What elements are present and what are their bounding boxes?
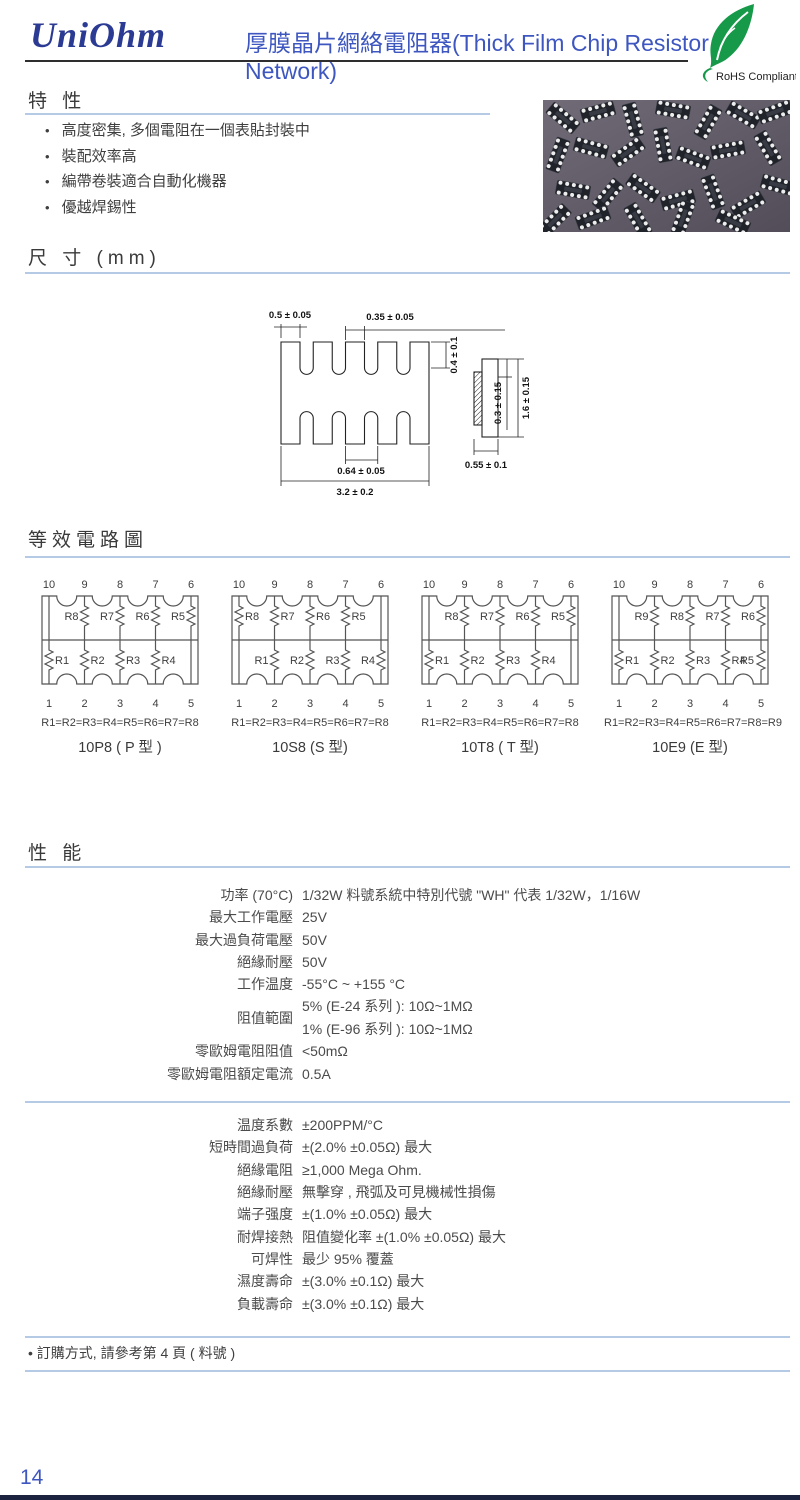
circuit-block-10p8: 10 9 8 7 6 1 2 3 4 5 R8 R7 R6 R5 R1 R2 R… — [34, 576, 206, 757]
dimensions-heading: 尺 寸 (mm) — [28, 243, 161, 270]
pin-number: 3 — [497, 698, 503, 710]
spec-label: 絕緣電阻 — [25, 1160, 293, 1180]
spec-label: 阻值範圍 — [25, 1008, 293, 1028]
dim-pad-width: 0.35 ± 0.05 — [366, 312, 414, 323]
resistor-label: R5 — [171, 611, 185, 623]
spec-row: 最大工作電壓25V — [25, 906, 785, 928]
resistor-label: R7 — [705, 611, 719, 623]
resistor-label: R4 — [361, 655, 375, 667]
spec-row: 絕緣耐壓無擊穿 , 飛弧及可見機械性損傷 — [25, 1181, 785, 1203]
pin-number: 4 — [532, 698, 538, 710]
resistor-label: R6 — [135, 611, 149, 623]
pin-number: 3 — [117, 698, 123, 710]
spec-value: 阻值變化率 ±(1.0% ±0.05Ω) 最大 — [302, 1227, 506, 1247]
pin-number: 1 — [236, 698, 242, 710]
spec-label: 功率 (70°C) — [25, 885, 293, 905]
circuit-block-10s8: 10 9 8 7 6 1 2 3 4 5 R8 R7 R6 R5 R1 R2 R… — [224, 576, 396, 757]
circuit-formula: R1=R2=R3=R4=R5=R6=R7=R8 — [34, 717, 206, 729]
spec-label: 零歐姆電阻額定電流 — [25, 1064, 293, 1084]
resistor-label: R3 — [696, 655, 710, 667]
pin-number: 9 — [461, 579, 467, 591]
features-heading: 特 性 — [28, 86, 86, 113]
resistor-label: R2 — [661, 655, 675, 667]
spec-value: 50V — [302, 954, 327, 970]
datasheet-page: UniOhm 厚膜晶片網絡電阻器(Thick Film Chip Resisto… — [0, 0, 800, 1500]
spec-value: 5% (E-24 系列 ): 10Ω~1MΩ 1% (E-96 系列 ): 10… — [302, 995, 473, 1040]
spec-table-electrical: 功率 (70°C)1/32W 料號系統中特別代號 "WH" 代表 1/32W，1… — [25, 884, 785, 1085]
resistor-label: R9 — [634, 611, 648, 623]
circuit-block-10e9: 10 9 8 7 6 1 2 3 4 5 R9 R8 R7 R6 R1 R2 R… — [604, 576, 776, 757]
rohs-label: RoHS Compliant — [716, 71, 796, 83]
spec-value: -55°C ~ +155 °C — [302, 976, 405, 992]
pin-number: 6 — [758, 579, 764, 591]
dim-width: 1.6 ± 0.15 — [521, 376, 532, 419]
pin-number: 4 — [342, 698, 348, 710]
header-divider — [25, 60, 688, 62]
circuit-caption: 10T8 ( T 型) — [414, 736, 586, 757]
pin-number: 6 — [188, 579, 194, 591]
spec-table-environmental: 温度系數±200PPM/°C 短時間過負荷±(2.0% ±0.05Ω) 最大 絕… — [25, 1114, 785, 1315]
spec-row: 最大過負荷電壓50V — [25, 929, 785, 951]
spec-row: 端子强度±(1.0% ±0.05Ω) 最大 — [25, 1203, 785, 1225]
pin-number: 1 — [46, 698, 52, 710]
dimensions-underline — [25, 272, 790, 274]
pin-number: 2 — [271, 698, 277, 710]
dim-length: 3.2 ± 0.2 — [337, 487, 374, 498]
spec-row: 耐焊接熱阻值變化率 ±(1.0% ±0.05Ω) 最大 — [25, 1225, 785, 1247]
spec-value: ±200PPM/°C — [302, 1117, 383, 1133]
spec-value: ±(1.0% ±0.05Ω) 最大 — [302, 1204, 432, 1224]
spec-label: 絕緣耐壓 — [25, 952, 293, 972]
feature-item: 高度密集, 多個電阻在一個表貼封裝中 — [45, 118, 310, 144]
spec-row: 絕緣電阻≥1,000 Mega Ohm. — [25, 1159, 785, 1181]
resistor-label: R8 — [670, 611, 684, 623]
spec-label: 短時間過負荷 — [25, 1137, 293, 1157]
dim-pad-end: 0.5 ± 0.05 — [269, 310, 312, 321]
pin-number: 8 — [497, 579, 503, 591]
spec-label: 温度系數 — [25, 1115, 293, 1135]
features-underline — [25, 113, 490, 115]
pin-number: 7 — [722, 579, 728, 591]
spec-value: ±(3.0% ±0.1Ω) 最大 — [302, 1271, 424, 1291]
resistor-label: R4 — [542, 655, 556, 667]
page-number: 14 — [20, 1466, 43, 1490]
spec-label: 端子强度 — [25, 1204, 293, 1224]
resistor-label: R2 — [91, 655, 105, 667]
pin-number: 5 — [188, 698, 194, 710]
pin-number: 4 — [722, 698, 728, 710]
resistor-label: R8 — [245, 611, 259, 623]
performance-underline — [25, 866, 790, 868]
resistor-label: R5 — [352, 611, 366, 623]
spec-label: 負載壽命 — [25, 1294, 293, 1314]
circuits-underline — [25, 556, 790, 558]
spec-value: 0.5A — [302, 1066, 331, 1082]
dim-pad-height: 0.4 ± 0.1 — [449, 336, 460, 374]
spec-value: <50mΩ — [302, 1043, 348, 1059]
spec-row: 負載壽命±(3.0% ±0.1Ω) 最大 — [25, 1292, 785, 1314]
feature-item: 優越焊錫性 — [45, 195, 310, 221]
spec-value: ≥1,000 Mega Ohm. — [302, 1162, 422, 1178]
spec-row: 阻值範圍 5% (E-24 系列 ): 10Ω~1MΩ 1% (E-96 系列 … — [25, 995, 785, 1040]
circuits-heading: 等效電路圖 — [28, 525, 148, 552]
pin-number: 2 — [651, 698, 657, 710]
features-list: 高度密集, 多個電阻在一個表貼封裝中 裝配效率高 編帶卷裝適合自動化機器 優越焊… — [45, 118, 310, 220]
circuit-diagram-10p8: 10 9 8 7 6 1 2 3 4 5 R8 R7 R6 R5 R1 R2 R… — [36, 576, 204, 710]
spec-row: 工作温度-55°C ~ +155 °C — [25, 973, 785, 995]
footer-divider-bottom — [25, 1370, 790, 1372]
spec-label: 濕度壽命 — [25, 1271, 293, 1291]
dim-thickness: 0.55 ± 0.1 — [465, 460, 508, 471]
pin-number: 6 — [568, 579, 574, 591]
resistor-label: R8 — [64, 611, 78, 623]
resistor-label: R6 — [741, 611, 755, 623]
pin-number: 7 — [532, 579, 538, 591]
spec-value: 50V — [302, 932, 327, 948]
spec-row: 零歐姆電阻阻值<50mΩ — [25, 1040, 785, 1062]
spec-label: 可焊性 — [25, 1249, 293, 1269]
pin-number: 3 — [307, 698, 313, 710]
pin-number: 3 — [687, 698, 693, 710]
resistor-label: R3 — [126, 655, 140, 667]
feature-item: 裝配效率高 — [45, 144, 310, 170]
spec-row: 温度系數±200PPM/°C — [25, 1114, 785, 1136]
resistor-label: R3 — [506, 655, 520, 667]
resistor-label: R6 — [316, 611, 330, 623]
circuit-formula: R1=R2=R3=R4=R5=R6=R7=R8 — [414, 717, 586, 729]
pin-number: 5 — [378, 698, 384, 710]
resistor-label: R2 — [290, 655, 304, 667]
circuit-caption: 10P8 ( P 型 ) — [34, 736, 206, 757]
spec-value: 無擊穿 , 飛弧及可見機械性損傷 — [302, 1182, 496, 1202]
resistor-label: R4 — [162, 655, 176, 667]
photo-resistor-networks — [543, 100, 790, 232]
pin-number: 2 — [461, 698, 467, 710]
resistor-label: R6 — [515, 611, 529, 623]
spec-value: 1/32W 料號系統中特別代號 "WH" 代表 1/32W，1/16W — [302, 885, 640, 905]
resistor-label: R5 — [740, 655, 754, 667]
spec-label: 最大工作電壓 — [25, 907, 293, 927]
pin-number: 5 — [758, 698, 764, 710]
pin-number: 10 — [613, 579, 625, 591]
pin-number: 2 — [81, 698, 87, 710]
resistor-label: R1 — [435, 655, 449, 667]
spec-value-line: 1% (E-96 系列 ): 10Ω~1MΩ — [302, 1018, 473, 1040]
pin-number: 7 — [152, 579, 158, 591]
footer-note: • 訂購方式, 請參考第 4 頁 ( 料號 ) — [28, 1343, 235, 1363]
spec-row: 短時間過負荷±(2.0% ±0.05Ω) 最大 — [25, 1136, 785, 1158]
resistor-label: R3 — [325, 655, 339, 667]
resistor-label: R7 — [480, 611, 494, 623]
resistor-label: R8 — [444, 611, 458, 623]
bottom-bar — [0, 1495, 800, 1500]
feature-item: 編帶卷裝適合自動化機器 — [45, 169, 310, 195]
spec-value: ±(3.0% ±0.1Ω) 最大 — [302, 1294, 424, 1314]
resistor-label: R1 — [254, 655, 268, 667]
resistor-label: R2 — [471, 655, 485, 667]
circuit-diagram-10s8: 10 9 8 7 6 1 2 3 4 5 R8 R7 R6 R5 R1 R2 R… — [226, 576, 394, 710]
pin-number: 8 — [117, 579, 123, 591]
resistor-label: R7 — [100, 611, 114, 623]
spec-value: ±(2.0% ±0.05Ω) 最大 — [302, 1137, 432, 1157]
leaf-stem-icon — [703, 68, 713, 82]
pin-number: 10 — [43, 579, 55, 591]
pin-number: 7 — [342, 579, 348, 591]
pin-number: 8 — [687, 579, 693, 591]
circuit-caption: 10S8 (S 型) — [224, 736, 396, 757]
resistor-label: R7 — [281, 611, 295, 623]
spec-row: 可焊性最少 95% 覆蓋 — [25, 1248, 785, 1270]
spec-label: 絕緣耐壓 — [25, 1182, 293, 1202]
circuit-diagram-10e9: 10 9 8 7 6 1 2 3 4 5 R9 R8 R7 R6 R1 R2 R… — [606, 576, 774, 710]
pin-number: 1 — [616, 698, 622, 710]
pin-number: 9 — [651, 579, 657, 591]
pin-number: 10 — [233, 579, 245, 591]
resistor-label: R1 — [625, 655, 639, 667]
spec-row: 濕度壽命±(3.0% ±0.1Ω) 最大 — [25, 1270, 785, 1292]
circuit-diagram-10t8: 10 9 8 7 6 1 2 3 4 5 R8 R7 R6 R5 R1 R2 R… — [416, 576, 584, 710]
spec-label: 耐焊接熱 — [25, 1227, 293, 1247]
circuit-formula: R1=R2=R3=R4=R5=R6=R7=R8 — [224, 717, 396, 729]
spec-row: 功率 (70°C)1/32W 料號系統中特別代號 "WH" 代表 1/32W，1… — [25, 884, 785, 906]
dim-pitch: 0.64 ± 0.05 — [337, 466, 385, 477]
spec-label: 工作温度 — [25, 974, 293, 994]
footer-divider-top — [25, 1336, 790, 1338]
pin-number: 1 — [426, 698, 432, 710]
pin-number: 6 — [378, 579, 384, 591]
pin-number: 9 — [81, 579, 87, 591]
spec-row: 零歐姆電阻額定電流0.5A — [25, 1062, 785, 1084]
resistor-label: R1 — [55, 655, 69, 667]
circuit-caption: 10E9 (E 型) — [604, 736, 776, 757]
spec-value-line: 5% (E-24 系列 ): 10Ω~1MΩ — [302, 995, 473, 1017]
spec-value: 25V — [302, 909, 327, 925]
pin-number: 8 — [307, 579, 313, 591]
pin-number: 5 — [568, 698, 574, 710]
pin-number: 9 — [271, 579, 277, 591]
spec-label: 最大過負荷電壓 — [25, 930, 293, 950]
spec-label: 零歐姆電阻阻值 — [25, 1041, 293, 1061]
pin-number: 10 — [423, 579, 435, 591]
circuit-block-10t8: 10 9 8 7 6 1 2 3 4 5 R8 R7 R6 R5 R1 R2 R… — [414, 576, 586, 757]
dimension-drawing: 0.5 ± 0.05 0.35 ± 0.05 0.4 ± 0.1 0.64 ± … — [250, 300, 570, 500]
circuit-formula: R1=R2=R3=R4=R5=R6=R7=R8=R9 — [604, 717, 776, 729]
performance-divider — [25, 1101, 790, 1103]
spec-row: 絕緣耐壓50V — [25, 951, 785, 973]
spec-value: 最少 95% 覆蓋 — [302, 1249, 394, 1269]
performance-heading: 性 能 — [28, 838, 86, 865]
dim-electrode: 0.3 ± 0.15 — [493, 381, 504, 424]
brand-logo: UniOhm — [30, 14, 166, 56]
resistor-label: R5 — [551, 611, 565, 623]
pin-number: 4 — [152, 698, 158, 710]
rohs-compliant-logo: RoHS Compliant — [688, 2, 796, 84]
